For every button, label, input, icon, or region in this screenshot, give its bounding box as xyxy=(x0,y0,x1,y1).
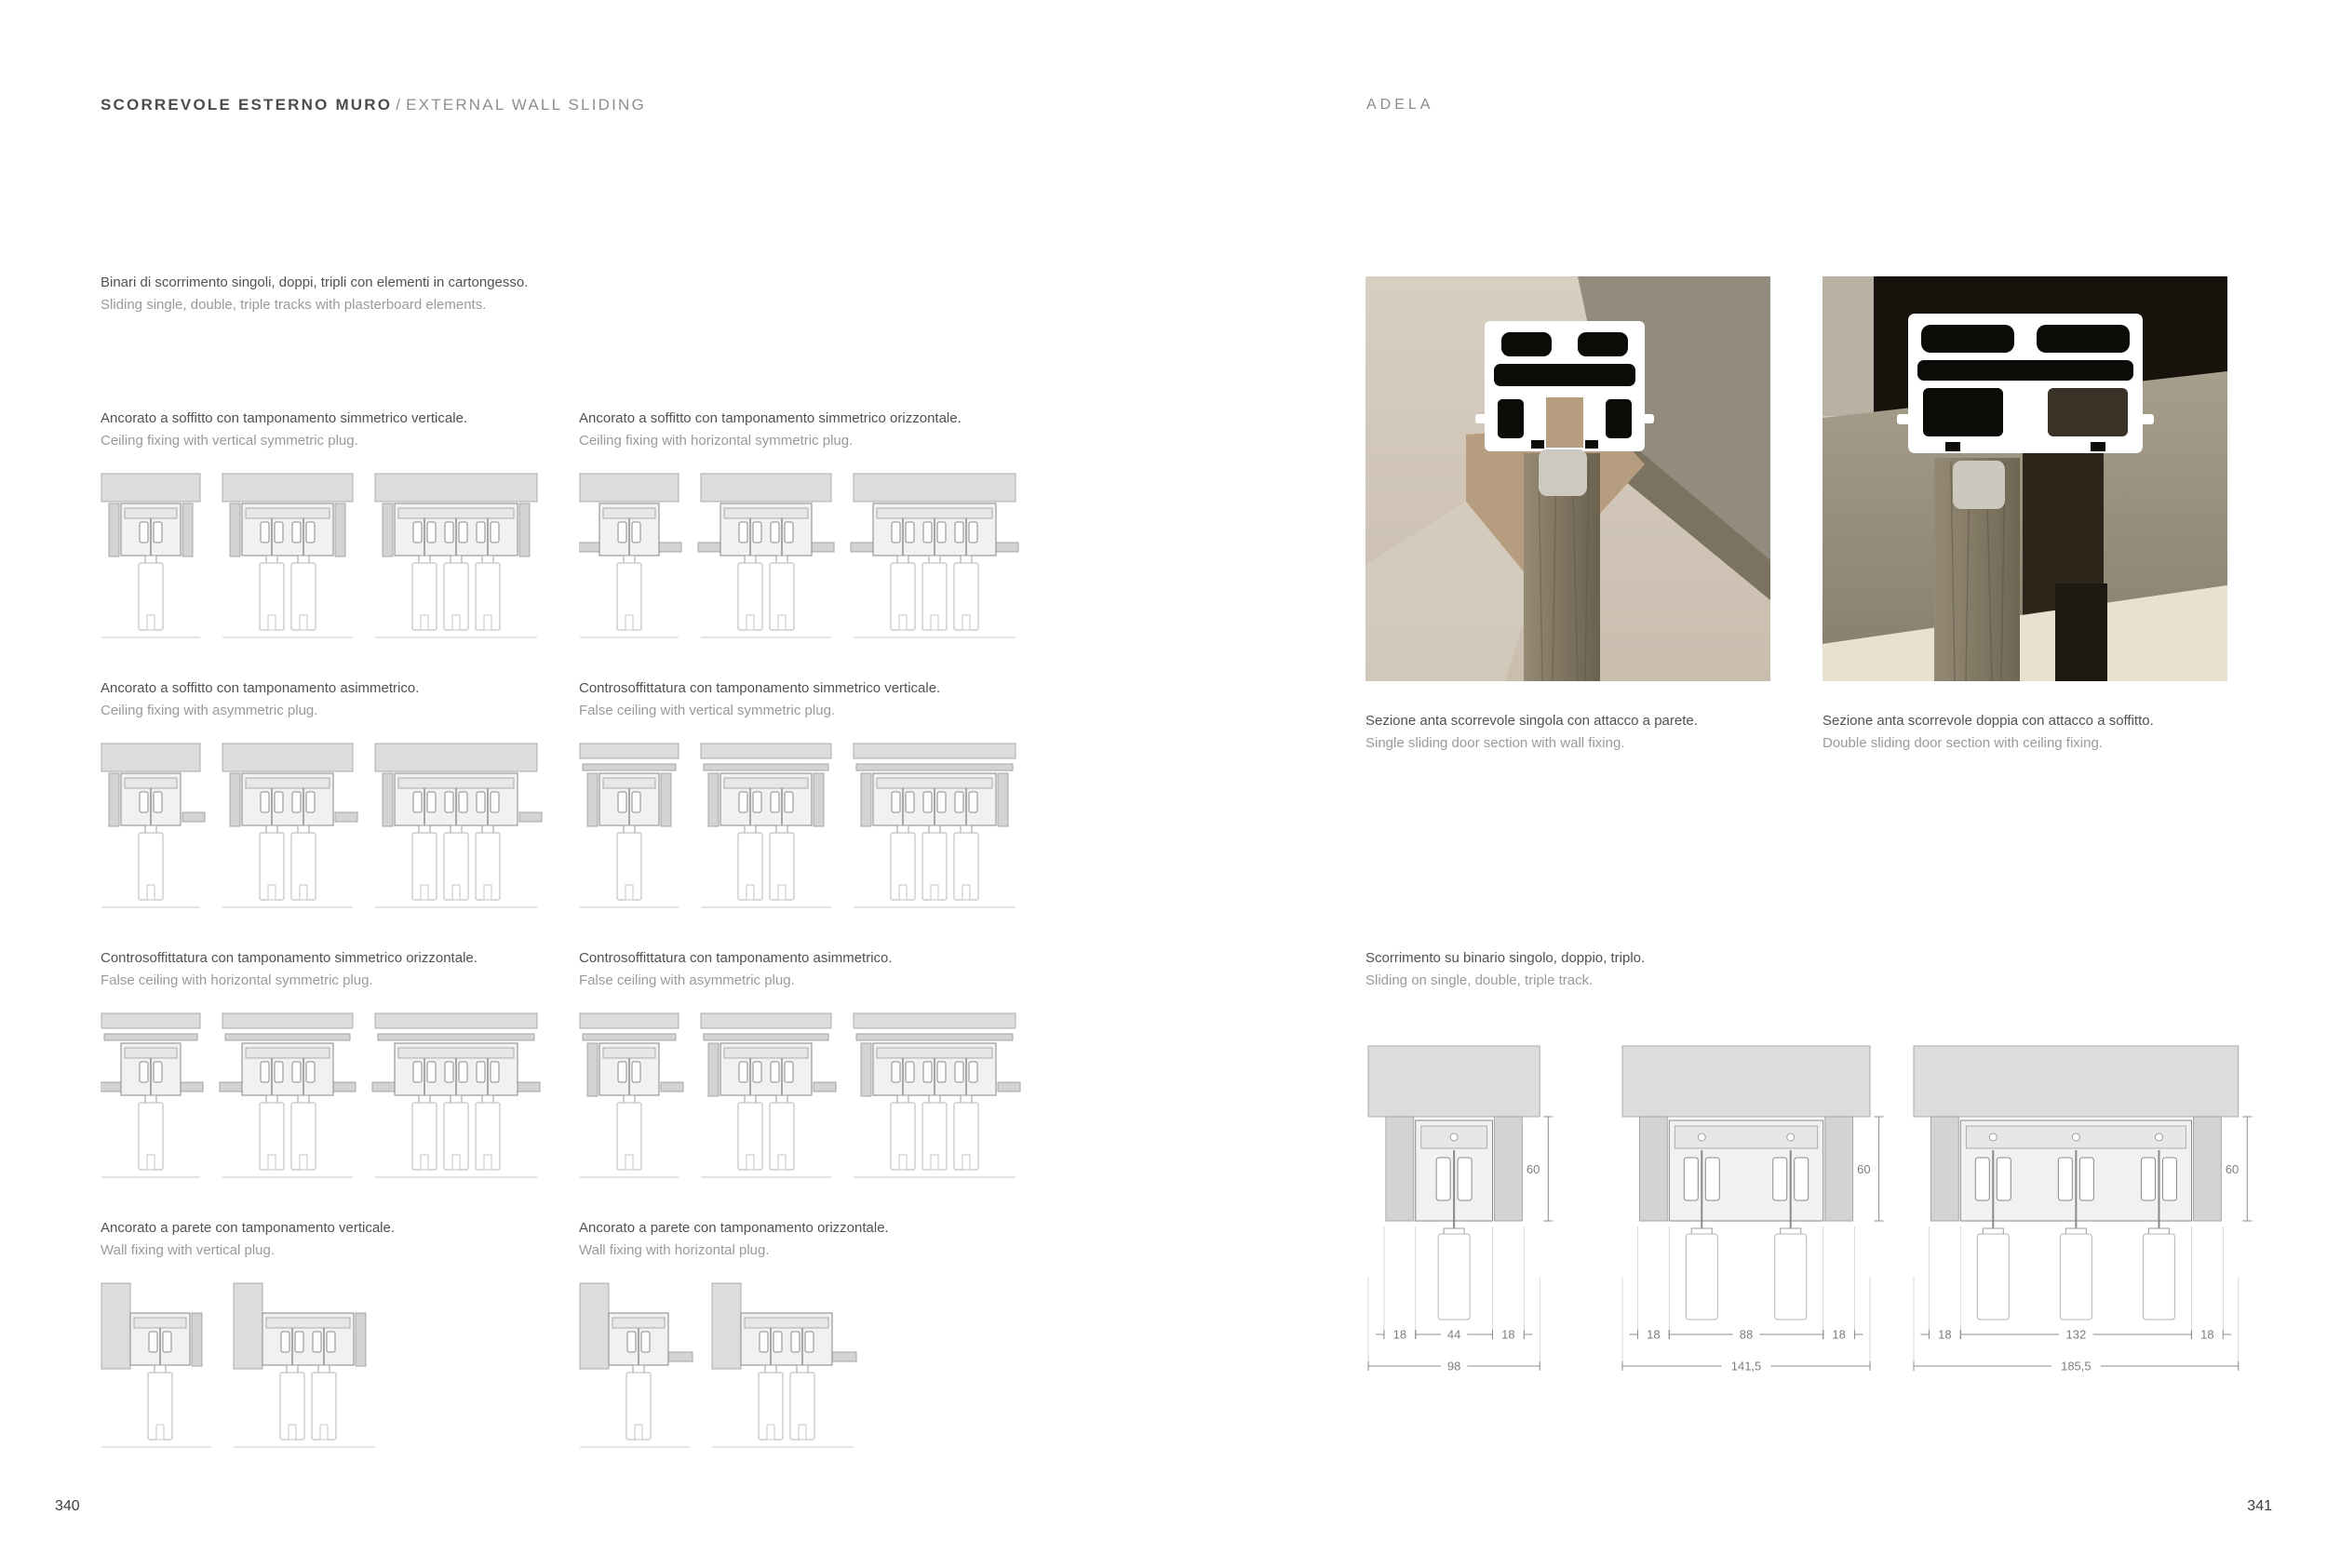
section-drawing-group xyxy=(101,468,547,645)
dimension-drawings-canvas: 1844189860188818141,5601813218185,560 xyxy=(1361,1044,2301,1388)
caption-english: False ceiling with horizontal symmetric … xyxy=(101,970,478,992)
dimensioned-section-drawing: 1813218185,560 xyxy=(1914,1046,2252,1374)
photo-single-section xyxy=(1365,276,1770,681)
intro-english: Sliding single, double, triple tracks wi… xyxy=(101,294,528,316)
section-drawing-group xyxy=(101,1008,547,1185)
section-drawing-group xyxy=(579,738,1026,915)
caption-italian: Ancorato a parete con tamponamento verti… xyxy=(101,1217,395,1240)
caption-italian: Sezione anta scorrevole singola con atta… xyxy=(1365,710,1698,732)
figure-caption-7: Ancorato a parete con tamponamento verti… xyxy=(101,1217,395,1262)
figure-caption-6: Controsoffittatura con tamponamento asim… xyxy=(579,947,893,992)
photo-caption-1: Sezione anta scorrevole singola con atta… xyxy=(1365,710,1698,755)
figure-caption-4: Controsoffittatura con tamponamento simm… xyxy=(579,677,940,722)
section-drawing-group xyxy=(101,738,547,915)
height-dimension-label: 60 xyxy=(1527,1162,1540,1176)
track-section-caption: Scorrimento su binario singolo, doppio, … xyxy=(1365,947,1645,992)
dimension-label: 18 xyxy=(1393,1328,1406,1342)
figure-caption-8: Ancorato a parete con tamponamento orizz… xyxy=(579,1217,889,1262)
caption-english: Wall fixing with vertical plug. xyxy=(101,1240,395,1262)
figure-caption-3: Ancorato a soffitto con tamponamento asi… xyxy=(101,677,419,722)
height-dimension-label: 60 xyxy=(2226,1162,2239,1176)
height-dimension-label: 60 xyxy=(1857,1162,1870,1176)
caption-english: False ceiling with vertical symmetric pl… xyxy=(579,700,940,722)
caption-italian: Ancorato a soffitto con tamponamento asi… xyxy=(101,677,419,700)
photo-caption-2: Sezione anta scorrevole doppia con attac… xyxy=(1823,710,2154,755)
caption-english: Double sliding door section with ceiling… xyxy=(1823,732,2154,755)
dimensioned-section-drawing: 1844189860 xyxy=(1368,1046,1553,1374)
figure-caption-2: Ancorato a soffitto con tamponamento sim… xyxy=(579,408,962,452)
caption-english: Ceiling fixing with asymmetric plug. xyxy=(101,700,419,722)
catalog-spread: SCORREVOLE ESTERNO MURO/EXTERNAL WALL SL… xyxy=(0,0,2327,1568)
page-title-separator: / xyxy=(392,96,406,114)
section-drawing xyxy=(101,738,547,915)
caption-italian: Controsoffittatura con tamponamento simm… xyxy=(101,947,478,970)
dimension-label: 185,5 xyxy=(2061,1360,2092,1374)
photo-double-section xyxy=(1823,276,2227,681)
caption-italian: Ancorato a soffitto con tamponamento sim… xyxy=(579,408,962,430)
caption-english: Wall fixing with horizontal plug. xyxy=(579,1240,889,1262)
caption-italian: Sezione anta scorrevole doppia con attac… xyxy=(1823,710,2154,732)
dimension-label: 98 xyxy=(1447,1360,1460,1374)
section-drawing-group xyxy=(579,1278,1026,1454)
dimension-label: 18 xyxy=(1501,1328,1514,1342)
section-drawing-group xyxy=(101,1278,547,1454)
dimension-label: 18 xyxy=(1938,1328,1951,1342)
section-drawing-group xyxy=(579,1008,1026,1185)
brand-name: ADELA xyxy=(1366,97,1433,114)
section-drawing-group xyxy=(579,468,1026,645)
intro-text: Binari di scorrimento singoli, doppi, tr… xyxy=(101,272,528,316)
figure-caption-1: Ancorato a soffitto con tamponamento sim… xyxy=(101,408,467,452)
dimension-label: 18 xyxy=(1647,1328,1660,1342)
dimensioned-section-drawing: 188818141,560 xyxy=(1622,1046,1884,1374)
dimension-label: 44 xyxy=(1447,1328,1460,1342)
section-drawing xyxy=(579,738,1026,915)
caption-english: Ceiling fixing with vertical symmetric p… xyxy=(101,430,467,452)
dimension-label: 18 xyxy=(2200,1328,2213,1342)
page-title-english: EXTERNAL WALL SLIDING xyxy=(406,96,646,114)
dimension-label: 141,5 xyxy=(1731,1360,1762,1374)
page-number-left: 340 xyxy=(55,1498,80,1515)
caption-english: False ceiling with asymmetric plug. xyxy=(579,970,893,992)
dimension-label: 132 xyxy=(2066,1328,2087,1342)
page-title: SCORREVOLE ESTERNO MURO/EXTERNAL WALL SL… xyxy=(101,96,646,114)
section-drawing xyxy=(101,468,547,645)
section-drawing xyxy=(579,468,1026,645)
caption-english: Ceiling fixing with horizontal symmetric… xyxy=(579,430,962,452)
intro-italian: Binari di scorrimento singoli, doppi, tr… xyxy=(101,272,528,294)
caption-english: Sliding on single, double, triple track. xyxy=(1365,970,1645,992)
photo-double-section-image xyxy=(1823,276,2227,681)
caption-italian: Ancorato a soffitto con tamponamento sim… xyxy=(101,408,467,430)
dimension-drawings: 1844189860188818141,5601813218185,560 xyxy=(1361,1044,2301,1388)
dimension-label: 18 xyxy=(1832,1328,1845,1342)
section-drawing xyxy=(101,1008,547,1185)
caption-italian: Ancorato a parete con tamponamento orizz… xyxy=(579,1217,889,1240)
section-drawing xyxy=(101,1278,547,1454)
page-title-italian: SCORREVOLE ESTERNO MURO xyxy=(101,96,392,114)
photo-single-section-image xyxy=(1365,276,1770,681)
caption-italian: Controsoffittatura con tamponamento asim… xyxy=(579,947,893,970)
figure-caption-5: Controsoffittatura con tamponamento simm… xyxy=(101,947,478,992)
caption-italian: Controsoffittatura con tamponamento simm… xyxy=(579,677,940,700)
section-drawing xyxy=(579,1278,1026,1454)
section-drawing xyxy=(579,1008,1026,1185)
page-number-right: 341 xyxy=(2206,1498,2272,1515)
caption-italian: Scorrimento su binario singolo, doppio, … xyxy=(1365,947,1645,970)
caption-english: Single sliding door section with wall fi… xyxy=(1365,732,1698,755)
dimension-label: 88 xyxy=(1740,1328,1753,1342)
